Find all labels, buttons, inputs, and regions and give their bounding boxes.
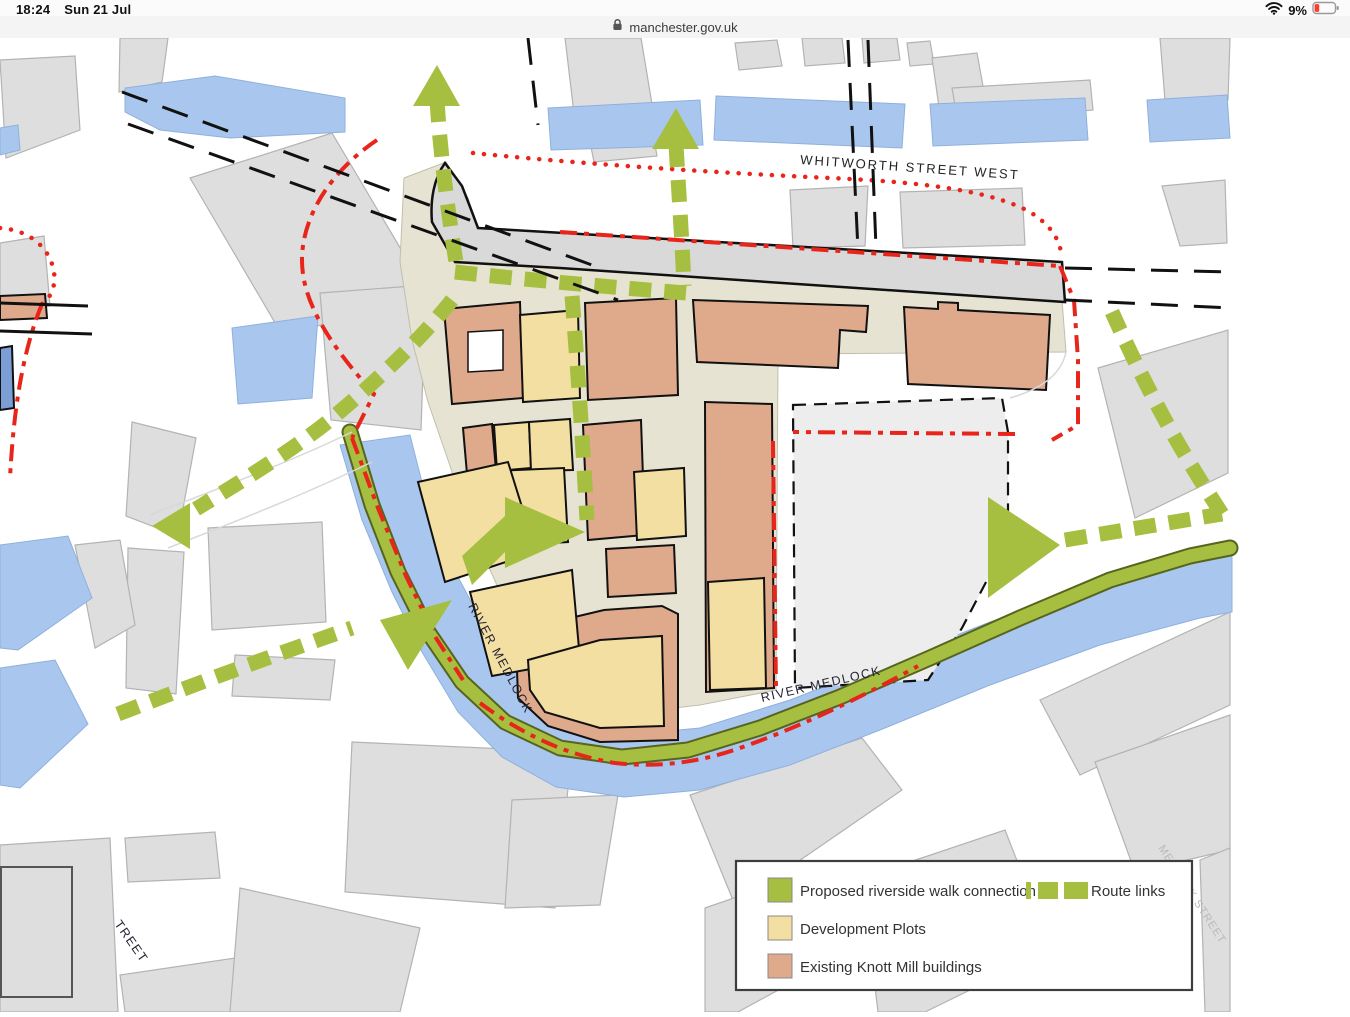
legend-existing-label: Existing Knott Mill buildings (800, 959, 982, 976)
url-domain-label: manchester.gov.uk (629, 20, 737, 35)
status-bar: 18:24Sun 21 Jul 9% (0, 0, 1350, 16)
url-bar[interactable]: manchester.gov.uk (0, 16, 1350, 38)
clock-label: 18:24 (16, 2, 50, 17)
legend-plots-label: Development Plots (800, 921, 926, 938)
padlock-icon (612, 18, 623, 36)
legend-existing-swatch (768, 954, 792, 978)
legend-walk-swatch (768, 878, 792, 902)
legend: Proposed riverside walk connection Route… (736, 861, 1192, 990)
legend-route-links-label: Route links (1091, 883, 1165, 900)
legend-plots-swatch (768, 916, 792, 940)
masterplan-map-image[interactable]: WHITWORTH STREET WEST RIVER MEDLOCK RIVE… (0, 38, 1350, 1012)
date-label: Sun 21 Jul (64, 2, 131, 17)
legend-walk-label: Proposed riverside walk connection (800, 883, 1036, 900)
browser-chrome: 18:24Sun 21 Jul 9% (0, 0, 1350, 39)
